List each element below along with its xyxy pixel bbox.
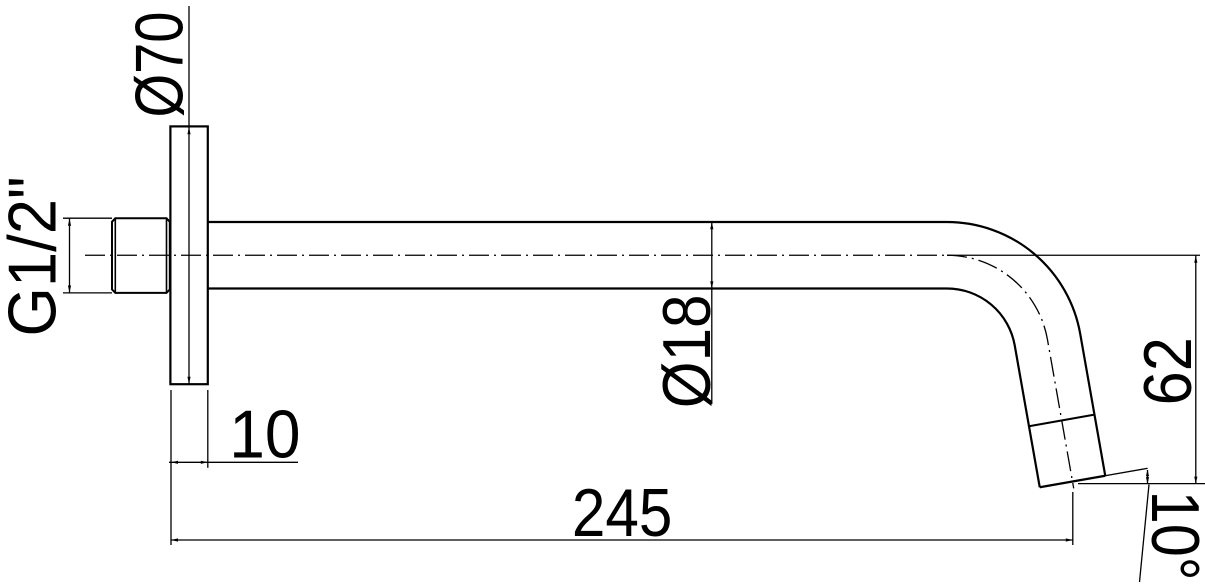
svg-text:10: 10: [229, 397, 300, 473]
svg-text:Ø18: Ø18: [649, 295, 725, 409]
svg-text:245: 245: [572, 475, 673, 551]
svg-text:62: 62: [1130, 337, 1205, 405]
svg-text:Ø70: Ø70: [122, 12, 198, 118]
svg-text:G1/2": G1/2": [0, 177, 71, 337]
svg-text:10°: 10°: [1137, 491, 1205, 581]
